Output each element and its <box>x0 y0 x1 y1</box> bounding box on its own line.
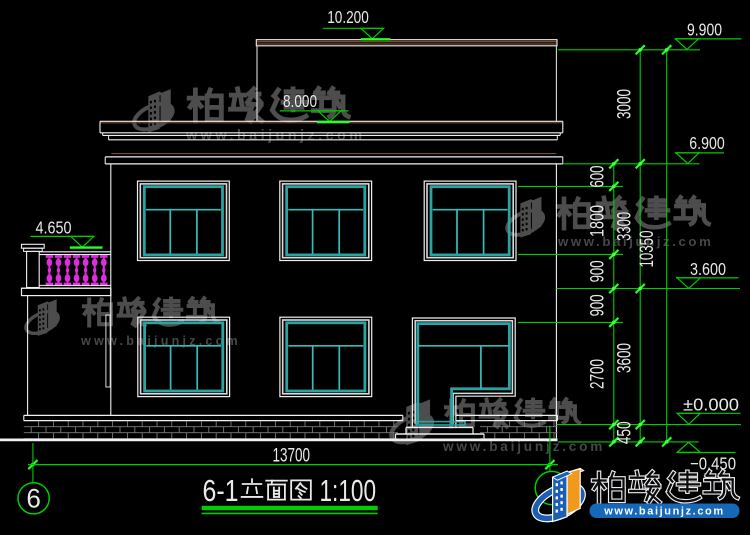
svg-text:www.baijunjz.com: www.baijunjz.com <box>603 506 725 518</box>
svg-text:4.650: 4.650 <box>36 218 72 238</box>
svg-text:450: 450 <box>615 421 636 444</box>
svg-text:2700: 2700 <box>587 359 608 389</box>
svg-text:6.900: 6.900 <box>689 133 725 153</box>
svg-text:900: 900 <box>587 260 608 282</box>
svg-text:3000: 3000 <box>615 89 636 119</box>
svg-text:900: 900 <box>587 294 608 316</box>
svg-text:13700: 13700 <box>273 446 311 467</box>
svg-text:6-1: 6-1 <box>203 473 239 508</box>
svg-text:±0.000: ±0.000 <box>683 395 739 415</box>
svg-text:6: 6 <box>26 484 41 514</box>
svg-text:9.900: 9.900 <box>687 20 722 40</box>
svg-text:10.200: 10.200 <box>327 7 369 27</box>
svg-text:1800: 1800 <box>587 205 608 237</box>
svg-text:600: 600 <box>587 166 608 188</box>
svg-text:3.600: 3.600 <box>690 259 726 279</box>
svg-text:www.baijunjz.com: www.baijunjz.com <box>185 128 366 144</box>
svg-text:3300: 3300 <box>615 212 636 241</box>
svg-text:−0.450: −0.450 <box>690 453 736 473</box>
svg-text:1:100: 1:100 <box>320 473 377 508</box>
svg-text:3600: 3600 <box>615 343 636 373</box>
svg-text:10350: 10350 <box>637 231 658 268</box>
svg-text:8.000: 8.000 <box>283 91 317 111</box>
